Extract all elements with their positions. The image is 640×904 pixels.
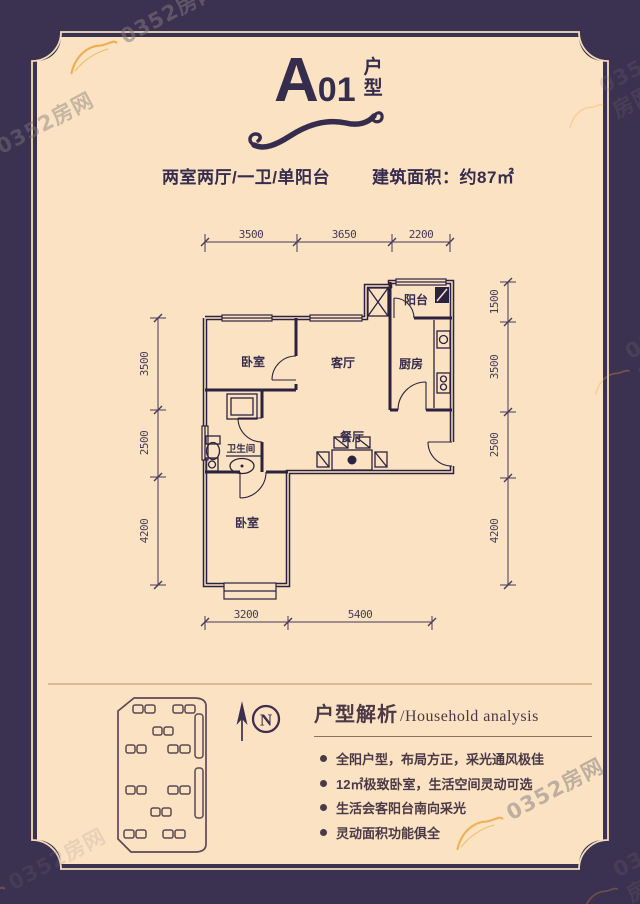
unit-letter: A: [274, 56, 317, 106]
plan-windows: [202, 279, 446, 599]
layout-summary: 两室两厅/一卫/单阳台: [162, 163, 330, 188]
watermark-text: 0352房网: [0, 84, 99, 160]
dim-label: 2500: [488, 433, 501, 458]
plan-doors: [238, 298, 452, 498]
watermark: 0352房网: [59, 0, 223, 80]
analysis-bullet-text: 全阳户型，布局方正，采光通风极佳: [336, 752, 544, 768]
bullet-dot-icon: [320, 829, 327, 836]
bay-window: [224, 583, 276, 599]
watermark-swoosh-icon: [561, 93, 609, 132]
analysis-bullet: 全阳户型，布局方正，采光通风极佳: [320, 752, 592, 768]
dimension-right: 1500 3500 2500 4200: [488, 278, 516, 589]
compass: N: [237, 701, 280, 741]
dim-label: 4200: [488, 519, 501, 544]
room-label-bedroom-top: 卧室: [241, 354, 265, 369]
unit-number: 01: [318, 75, 356, 106]
room-label-bedroom-bottom: 卧室: [235, 515, 259, 530]
analysis-bullet-text: 12㎡极致卧室，生活空间灵动可选: [336, 777, 532, 793]
dim-label: 3650: [332, 228, 357, 241]
watermark: 0352房网: [579, 306, 640, 413]
unit-type-label: 户 型: [364, 57, 383, 99]
analysis-header: 户型解析 /Household analysis: [314, 698, 592, 737]
analysis-bullet-text: 生活会客阳台南向采光: [336, 801, 466, 817]
watermark-text: 0352房网: [595, 40, 640, 124]
site-buildings: [124, 705, 203, 838]
bullet-dot-icon: [320, 780, 327, 787]
analysis-bullet-list: 全阳户型，布局方正，采光通风极佳 12㎡极致卧室，生活空间灵动可选 生活会客阳台…: [314, 752, 592, 841]
watermark-text: 0352房网: [609, 824, 640, 904]
dim-label: 3500: [488, 355, 501, 380]
kitchen-counter: [434, 320, 450, 408]
room-label-dining: 餐厅: [340, 429, 364, 444]
dining-set: [317, 437, 387, 470]
site-map: [118, 698, 206, 852]
watermark-swoosh-icon: [61, 30, 123, 77]
bullet-dot-icon: [320, 755, 327, 762]
analysis-section: 户型解析 /Household analysis 全阳户型，布局方正，采光通风极…: [314, 698, 592, 850]
dimension-top: 3500 3650 2200: [201, 228, 454, 252]
dim-label: 4200: [138, 519, 151, 544]
watermark: 0352房网: [0, 84, 99, 190]
analysis-bullet: 12㎡极致卧室，生活空间灵动可选: [320, 777, 592, 793]
analysis-bullet: 生活会客阳台南向采光: [320, 801, 592, 817]
analysis-title-en: /Household analysis: [400, 708, 539, 726]
watermark-text: 0352房网: [3, 820, 111, 896]
watermark-swoosh-icon: [0, 876, 10, 904]
unit-type-char-top: 户: [364, 57, 383, 78]
dim-label: 3200: [234, 608, 259, 621]
dim-label: 3500: [239, 228, 264, 241]
unit-title: A 01 户 型: [274, 56, 383, 106]
dim-label: 3500: [138, 352, 151, 377]
dim-label: 5400: [348, 608, 373, 621]
bathroom-fixtures: [206, 394, 262, 474]
balcony-heater: [435, 287, 449, 303]
watermark-text: 0352房网: [115, 0, 223, 51]
analysis-bullet-text: 灵动面积功能俱全: [336, 826, 440, 842]
dim-label: 2200: [409, 228, 434, 241]
elevator-shaft: [368, 288, 388, 316]
watermark: 0352房网: [553, 40, 640, 147]
north-arrow-icon: [237, 701, 248, 725]
dimension-bottom: 3200 5400: [201, 608, 436, 630]
dimension-left: 3500 2500 4200: [138, 314, 166, 589]
analysis-title-zh: 户型解析: [314, 698, 398, 727]
dim-label: 2500: [138, 431, 151, 456]
dim-label: 1500: [488, 290, 501, 315]
room-label-balcony: 阳台: [404, 292, 428, 307]
floorplan-poster: 0352房网 0352房网 0352房网 0352房网 0352房网 0352房…: [0, 0, 640, 904]
unit-type-char-bottom: 型: [364, 78, 383, 99]
built-area: 建筑面积：约87㎡: [372, 163, 514, 188]
compass-circle: [253, 706, 279, 732]
room-label-living: 客厅: [330, 355, 355, 370]
analysis-bullet: 灵动面积功能俱全: [320, 826, 592, 842]
room-label-kitchen: 厨房: [399, 356, 423, 371]
watermark: 0352房网: [0, 820, 111, 904]
plan-walls: [205, 282, 452, 585]
room-label-bathroom: 卫生间: [227, 443, 256, 455]
watermark-text: 0352房网: [621, 306, 640, 390]
compass-label: N: [260, 711, 273, 730]
watermark-swoosh-icon: [587, 359, 635, 398]
swirl-ornament: [246, 110, 386, 154]
watermark-swoosh-icon: [575, 877, 623, 904]
bullet-dot-icon: [320, 804, 327, 811]
